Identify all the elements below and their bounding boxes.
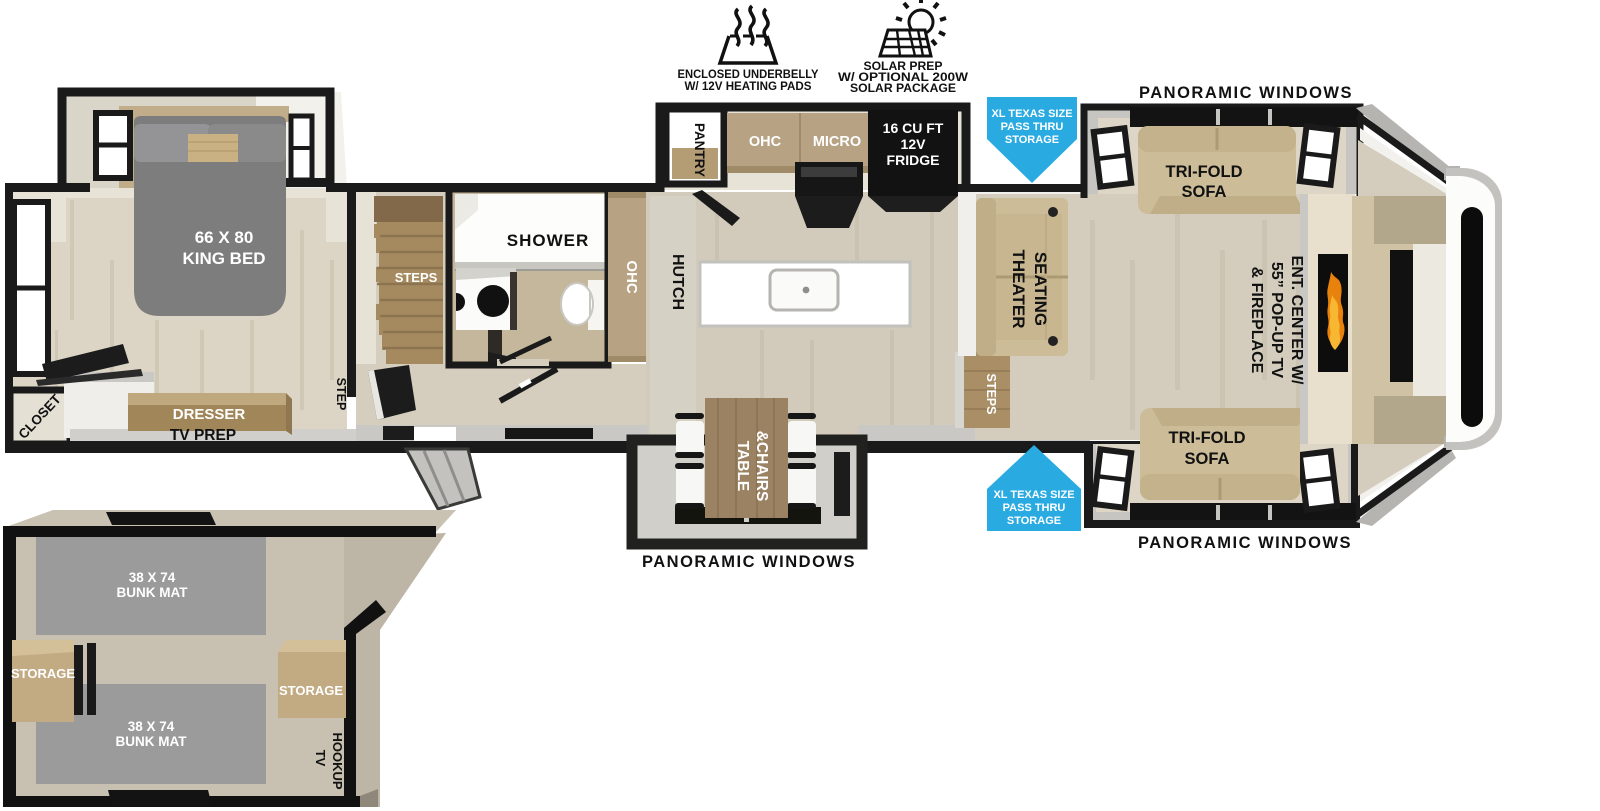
svg-text:SOFA: SOFA: [1185, 450, 1230, 468]
svg-text:STORAGE: STORAGE: [1007, 515, 1061, 527]
svg-text:38 X 74: 38 X 74: [129, 570, 176, 585]
svg-text:PANORAMIC WINDOWS: PANORAMIC WINDOWS: [642, 553, 856, 571]
svg-text:HUTCH: HUTCH: [669, 254, 686, 310]
svg-text:W/ 12V HEATING PADS: W/ 12V HEATING PADS: [685, 81, 812, 93]
svg-text:16 CU FT: 16 CU FT: [883, 120, 944, 136]
svg-text:& FIREPLACE: & FIREPLACE: [1248, 267, 1265, 374]
svg-text:TABLE: TABLE: [734, 441, 751, 492]
svg-text:BUNK MAT: BUNK MAT: [117, 585, 189, 600]
svg-text:12V: 12V: [901, 136, 927, 152]
svg-text:OHC: OHC: [749, 134, 782, 150]
svg-text:ENT. CENTER W/: ENT. CENTER W/: [1288, 256, 1305, 385]
svg-text:MICRO: MICRO: [813, 134, 861, 150]
svg-text:XL TEXAS SIZE: XL TEXAS SIZE: [993, 489, 1074, 501]
svg-text:ENCLOSED UNDERBELLY: ENCLOSED UNDERBELLY: [678, 69, 819, 81]
svg-text:STORAGE: STORAGE: [11, 666, 75, 681]
svg-text:STEP: STEP: [334, 378, 348, 411]
svg-text:BUNK MAT: BUNK MAT: [116, 734, 188, 749]
svg-text:STORAGE: STORAGE: [1005, 134, 1059, 146]
svg-text:TRI-FOLD: TRI-FOLD: [1166, 163, 1243, 181]
svg-text:STEPS: STEPS: [984, 374, 998, 415]
svg-text:55” POP-UP TV: 55” POP-UP TV: [1268, 262, 1285, 379]
svg-text:38 X 74: 38 X 74: [128, 719, 175, 734]
svg-text:PANORAMIC WINDOWS: PANORAMIC WINDOWS: [1138, 534, 1352, 552]
svg-text:66 X 80: 66 X 80: [195, 228, 254, 247]
svg-text:PASS THRU: PASS THRU: [1001, 121, 1064, 133]
svg-text:FRIDGE: FRIDGE: [887, 152, 940, 168]
svg-text:TRI-FOLD: TRI-FOLD: [1169, 429, 1246, 447]
svg-text:SOLAR PACKAGE: SOLAR PACKAGE: [850, 83, 956, 95]
svg-text:XL TEXAS SIZE: XL TEXAS SIZE: [991, 108, 1072, 120]
svg-text:KING BED: KING BED: [182, 249, 265, 268]
svg-text:PANORAMIC WINDOWS: PANORAMIC WINDOWS: [1139, 84, 1353, 102]
svg-text:OHC: OHC: [623, 260, 640, 294]
svg-text:STORAGE: STORAGE: [279, 683, 343, 698]
svg-text:HOOKUP: HOOKUP: [330, 732, 345, 789]
svg-text:THEATER: THEATER: [1009, 249, 1028, 328]
svg-text:STEPS: STEPS: [395, 270, 438, 285]
svg-text:SEATING: SEATING: [1031, 252, 1050, 326]
svg-text:DRESSER: DRESSER: [173, 406, 246, 423]
svg-text:&CHAIRS: &CHAIRS: [753, 431, 770, 502]
svg-text:PANTRY: PANTRY: [692, 123, 707, 177]
svg-text:SHOWER: SHOWER: [507, 231, 590, 250]
svg-text:TV: TV: [313, 750, 328, 767]
svg-text:PASS THRU: PASS THRU: [1003, 502, 1066, 514]
svg-text:SOFA: SOFA: [1182, 183, 1227, 201]
